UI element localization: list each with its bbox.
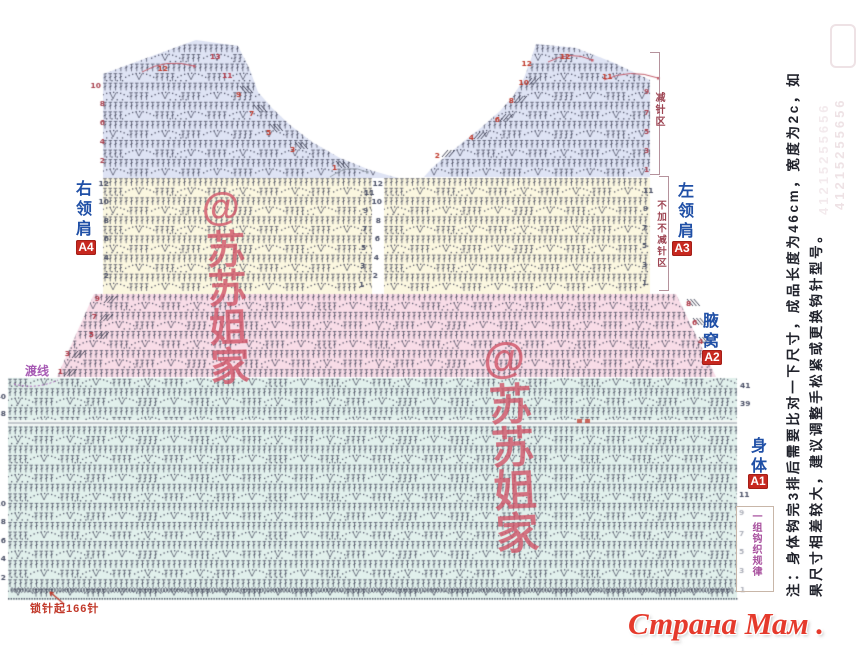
right-shoulder-label: 右领肩	[73, 180, 89, 240]
armpit-badge: A2	[702, 350, 722, 365]
pattern-repeat-label: 一组钩织规律	[748, 511, 763, 577]
faded-tag-icon	[830, 24, 856, 68]
foundation-chain-label: 锁针起166针	[30, 600, 99, 616]
right-shoulder-badge: A4	[76, 240, 96, 255]
faded-contact-watermark: 41215255656	[832, 97, 847, 210]
note-line-1: 注：身体钩完3排后需要比对一下尺寸，成品长度为46cm，宽度为2c，如	[782, 71, 805, 597]
left-shoulder-badge: A3	[672, 241, 692, 256]
shop-watermark: @苏苏姐家	[198, 185, 249, 385]
faded-contact-watermark: 41215255656	[816, 102, 831, 215]
body-badge: A1	[748, 474, 768, 489]
body-label: 身体	[748, 437, 764, 477]
left-shoulder-label: 左领肩	[675, 182, 691, 242]
crochet-pattern-page: 右领肩 A4 左领肩 A3 腋窝 A2 身体 A1 减针区 不加不减针区 一组钩…	[0, 0, 860, 655]
crossing-thread-label: 渡线	[25, 362, 49, 379]
no-change-zone-label: 不加不减针区	[653, 200, 667, 269]
armpit-label: 腋窝	[700, 312, 716, 352]
site-logo[interactable]: Страна Мам . ру	[628, 606, 860, 655]
crochet-chart-canvas	[0, 0, 860, 655]
decrease-zone-label: 减针区	[651, 92, 666, 128]
